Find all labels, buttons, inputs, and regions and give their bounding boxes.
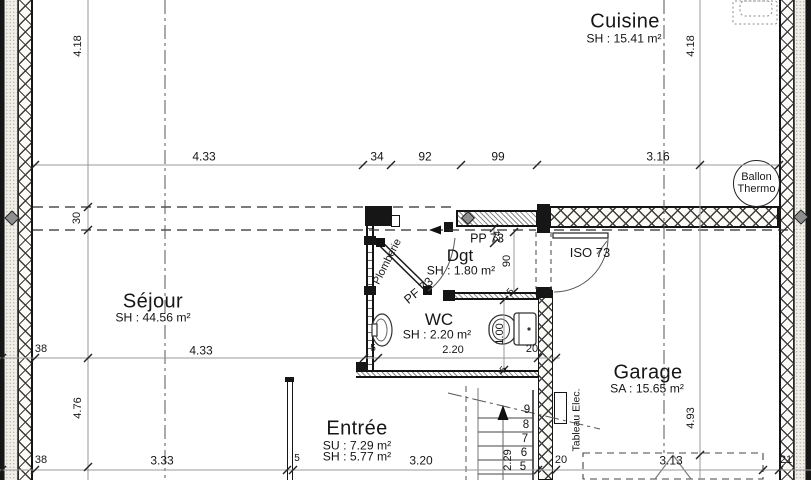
room-area-cuisine: SH : 15.41 m² — [586, 33, 661, 46]
door-iso-label: ISO 73 — [570, 246, 610, 260]
stair-step-9: 9 — [524, 404, 530, 416]
door-pf-jamb-a — [376, 238, 385, 247]
door-iso-73 — [536, 232, 608, 292]
room-label-sejour: Séjour — [123, 292, 183, 313]
dim-bot-21: 21 — [780, 455, 792, 467]
wall-sejour-entree — [287, 378, 293, 480]
dim-left-418: 4.18 — [73, 35, 85, 56]
ballon-thermo-label-1: Ballon — [741, 172, 772, 184]
wall-wc-top — [443, 292, 538, 300]
door-pp-strip — [456, 210, 538, 227]
dim-dgt-90: 90 — [502, 255, 514, 267]
dim-left-476: 4.76 — [73, 397, 85, 418]
wc-basin — [372, 314, 392, 346]
tableau-elec-label: Tableau Elec. — [571, 388, 582, 451]
kitchen-appliance-dotted — [733, 1, 777, 24]
cap-sejour-entree — [285, 377, 294, 382]
room-area-wc: SH : 2.20 m² — [403, 329, 471, 342]
dim-top-34: 34 — [370, 151, 383, 164]
room-area-entree-sh: SH : 5.77 m² — [323, 451, 391, 464]
room-label-wc: WC — [425, 311, 453, 329]
stair-step-5: 5 — [520, 461, 526, 473]
jamb-wc-top-left — [443, 290, 455, 301]
stair-arrow — [498, 405, 509, 420]
door-pf-label: PF 73 — [402, 275, 436, 306]
dim-top-433: 4.33 — [192, 151, 215, 164]
dim-top-92: 92 — [418, 151, 431, 164]
room-area-dgt: SH : 1.80 m² — [427, 265, 495, 278]
wall-wc-bottom — [356, 370, 540, 378]
wall-kitchen-garage — [549, 206, 779, 228]
room-area-garage: SA : 15.65 m² — [610, 383, 684, 396]
room-area-sejour: SH : 44.56 m² — [115, 312, 190, 325]
chimney-box — [391, 215, 400, 227]
wall-left-insulation — [4, 0, 18, 480]
stair-step-6: 6 — [521, 447, 527, 459]
wall-right-outer — [806, 0, 811, 480]
door-iso-leaf — [553, 233, 608, 238]
jamb-kitchen-garage — [537, 204, 550, 233]
dim-bot-38: 38 — [35, 455, 47, 467]
plomberie-label: Plomberie — [372, 237, 405, 286]
chimney-duct — [365, 206, 392, 226]
room-label-entree: Entrée — [326, 419, 387, 440]
room-label-cuisine: Cuisine — [590, 12, 660, 33]
dim-left-30: 30 — [72, 212, 84, 224]
dim-mid-433: 4.33 — [189, 345, 212, 358]
dim-bot-333: 3.33 — [150, 455, 173, 468]
dim-mid-38: 38 — [35, 344, 47, 356]
dim-mid-220: 2.20 — [442, 345, 463, 357]
dim-bot-5: 5 — [294, 454, 300, 465]
stair-step-8: 8 — [523, 419, 529, 431]
dim-stair-229: 2.29 — [503, 449, 515, 470]
wall-right-inner — [779, 0, 794, 480]
dim-bot-20: 20 — [555, 455, 567, 467]
dim-bot-320: 3.20 — [409, 455, 432, 468]
axis-lines — [165, 0, 664, 478]
jamb-dgt-a — [364, 236, 376, 245]
ballon-thermo-circle: Ballon Thermo — [733, 160, 780, 207]
dim-top-316: 3.16 — [646, 151, 669, 164]
wall-left-inner — [18, 0, 33, 480]
dim-pp-24: 24 — [493, 231, 503, 242]
dim-right-418: 4.18 — [686, 35, 698, 56]
jamb-dgt-b — [364, 286, 376, 295]
beam-arrow — [429, 226, 441, 235]
wall-right-insulation — [794, 0, 806, 480]
wall-garage-left — [538, 290, 553, 480]
ballon-thermo-label-2: Thermo — [738, 184, 776, 196]
room-label-dgt: Dgt — [447, 247, 473, 265]
tableau-elec-box — [554, 392, 567, 424]
dim-mid-20: 20 — [526, 344, 538, 356]
jamb-garage-door — [536, 287, 552, 298]
dim-bot-313: 3.13 — [659, 455, 682, 468]
jamb-pp — [444, 222, 453, 232]
dim-top-99: 99 — [491, 151, 504, 164]
floor-plan: Ballon Thermo — [0, 0, 811, 480]
dim-mid-5: 5 — [370, 344, 376, 355]
dim-garage-493: 4.93 — [686, 407, 698, 428]
room-label-garage: Garage — [613, 363, 682, 384]
stair-step-7: 7 — [522, 433, 528, 445]
dim-wc-100: 1.00 — [495, 323, 507, 344]
